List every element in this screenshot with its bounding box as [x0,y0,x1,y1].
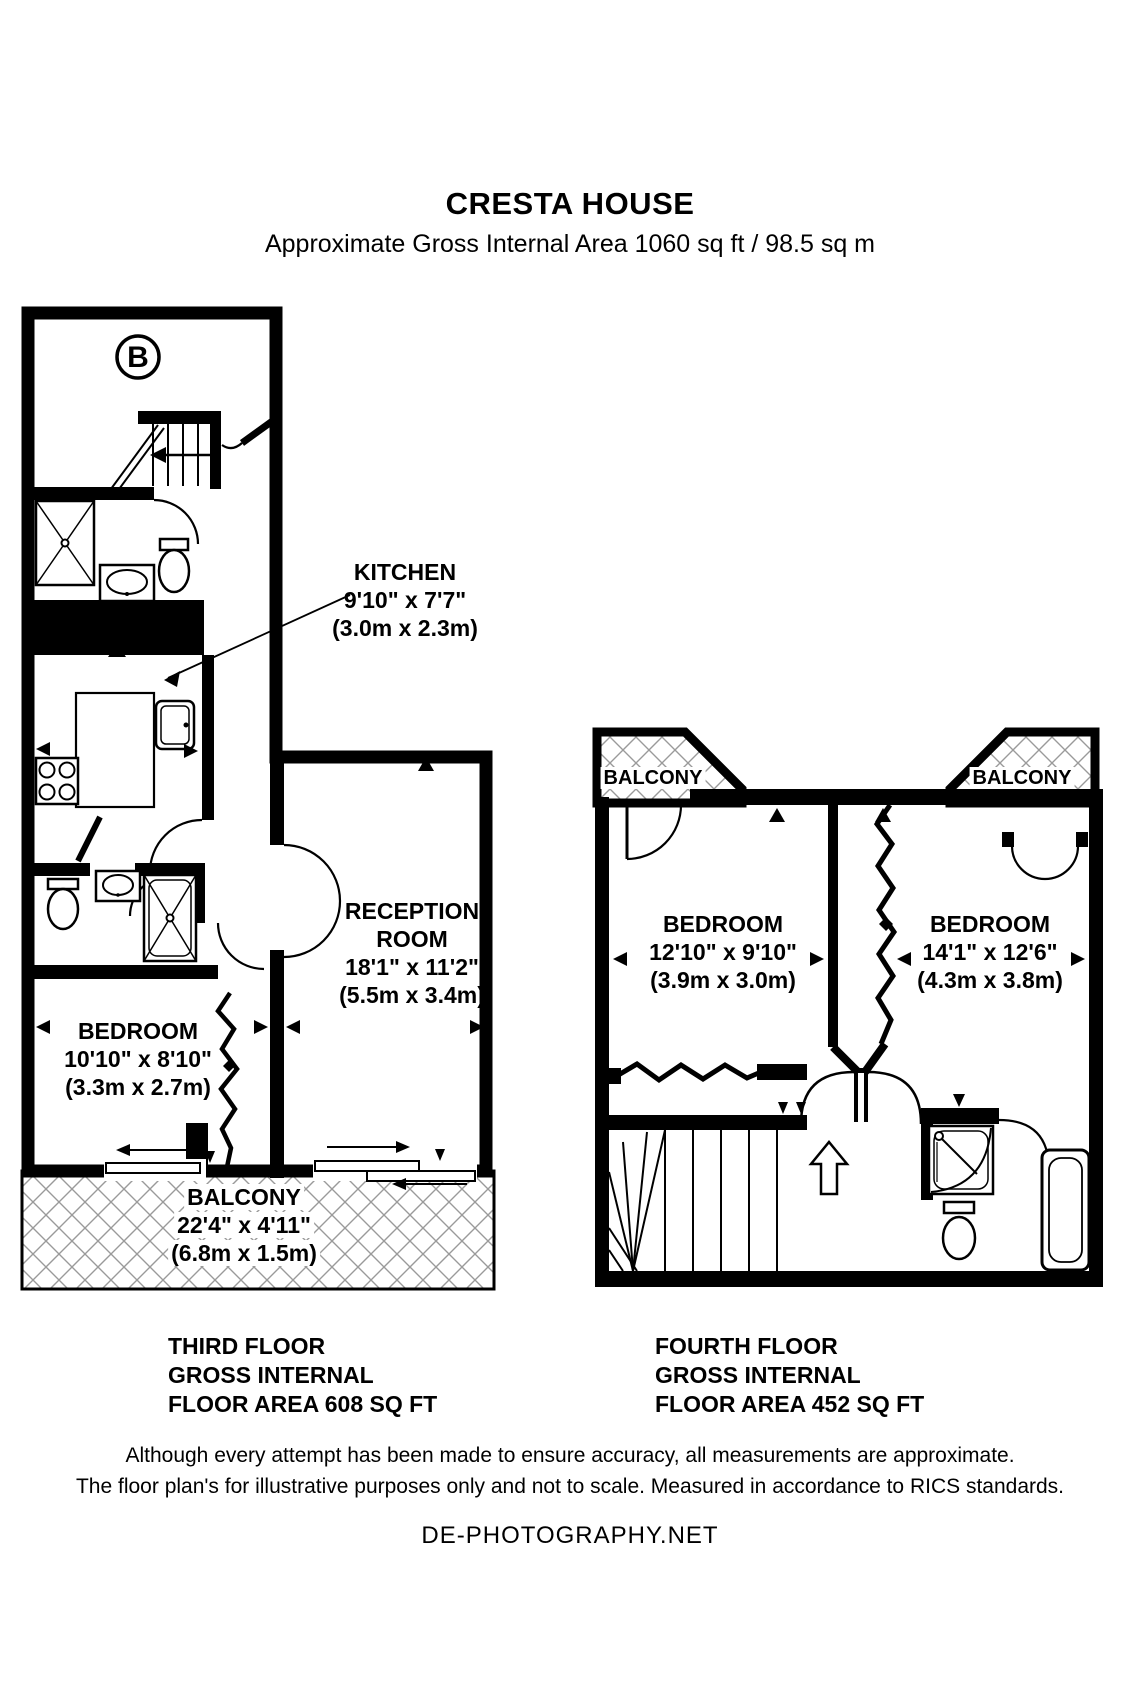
bedroom-fourth-left-label: BEDROOM 12'10" x 9'10" (3.9m x 3.0m) [649,910,797,994]
fourth-floor-footer-line1: FOURTH FLOOR [655,1332,924,1361]
reception-name1: RECEPTION [339,897,485,925]
bedroom-fourth-right-name: BEDROOM [917,910,1063,938]
disclaimer: Although every attempt has been made to … [0,1440,1140,1502]
bedroom-fourth-right-metric: (4.3m x 3.8m) [917,966,1063,994]
bedroom-fourth-right-imperial: 14'1" x 12'6" [917,938,1063,966]
credit: DE-PHOTOGRAPHY.NET [0,1522,1140,1550]
compass-letter: B [127,341,149,374]
balcony-fourth-right-label: BALCONY [970,766,1075,790]
reception-imperial: 18'1" x 11'2" [339,953,485,981]
stairs-icon-fourth [609,1130,777,1271]
page-title: CRESTA HOUSE [0,186,1140,222]
floorplan-page: CRESTA HOUSE Approximate Gross Internal … [0,0,1140,1700]
bedroom-fourth-left-name: BEDROOM [649,910,797,938]
bedroom-fourth-left-imperial: 12'10" x 9'10" [649,938,797,966]
reception-label: RECEPTION ROOM 18'1" x 11'2" (5.5m x 3.4… [339,897,485,1009]
balcony-fourth-right-name: BALCONY [970,767,1075,789]
third-floor-footer-line3: FLOOR AREA 608 SQ FT [168,1390,437,1419]
bedroom-fourth-right-label: BEDROOM 14'1" x 12'6" (4.3m x 3.8m) [917,910,1063,994]
balcony-fourth-left-name: BALCONY [601,767,706,789]
balcony-third-metric: (6.8m x 1.5m) [168,1240,320,1266]
reception-metric: (5.5m x 3.4m) [339,981,485,1009]
third-floor-footer: THIRD FLOOR GROSS INTERNAL FLOOR AREA 60… [168,1332,437,1419]
balcony-third-imperial: 22'4" x 4'11" [174,1212,314,1238]
bedroom-third-metric: (3.3m x 2.7m) [64,1073,212,1101]
arch-doorway-icon [801,1072,921,1124]
fourth-floor-footer-line3: FLOOR AREA 452 SQ FT [655,1390,924,1419]
walls-fourth [595,789,1103,1287]
balcony-fourth-left-label: BALCONY [601,766,706,790]
entrance-arrow-icon [811,1142,847,1194]
balcony-third-name: BALCONY [184,1184,304,1210]
kitchen-label: KITCHEN 9'10" x 7'7" (3.0m x 2.3m) [332,558,478,642]
disclaimer-line2: The floor plan's for illustrative purpos… [0,1471,1140,1502]
fourth-floor-footer: FOURTH FLOOR GROSS INTERNAL FLOOR AREA 4… [655,1332,924,1419]
kitchen-metric: (3.0m x 2.3m) [332,614,478,642]
reception-name2: ROOM [339,925,485,953]
third-floor-footer-line1: THIRD FLOOR [168,1332,437,1361]
third-floor-footer-line2: GROSS INTERNAL [168,1361,437,1390]
bedroom-third-name: BEDROOM [64,1017,212,1045]
kitchen-imperial: 9'10" x 7'7" [332,586,478,614]
bedroom-third-label: BEDROOM 10'10" x 8'10" (3.3m x 2.7m) [64,1017,212,1101]
third-floor-plan: B [20,305,500,1295]
fourth-floor-footer-line2: GROSS INTERNAL [655,1361,924,1390]
balcony-third-label: BALCONY 22'4" x 4'11" (6.8m x 1.5m) [168,1183,320,1267]
disclaimer-line1: Although every attempt has been made to … [0,1440,1140,1471]
page-subtitle: Approximate Gross Internal Area 1060 sq … [0,230,1140,259]
bedroom-third-imperial: 10'10" x 8'10" [64,1045,212,1073]
bathroom-icons-fourth [929,1126,1089,1270]
kitchen-name: KITCHEN [332,558,478,586]
zigzag-wall-bottom-icon [615,1064,761,1080]
bedroom-fourth-left-metric: (3.9m x 3.0m) [649,966,797,994]
